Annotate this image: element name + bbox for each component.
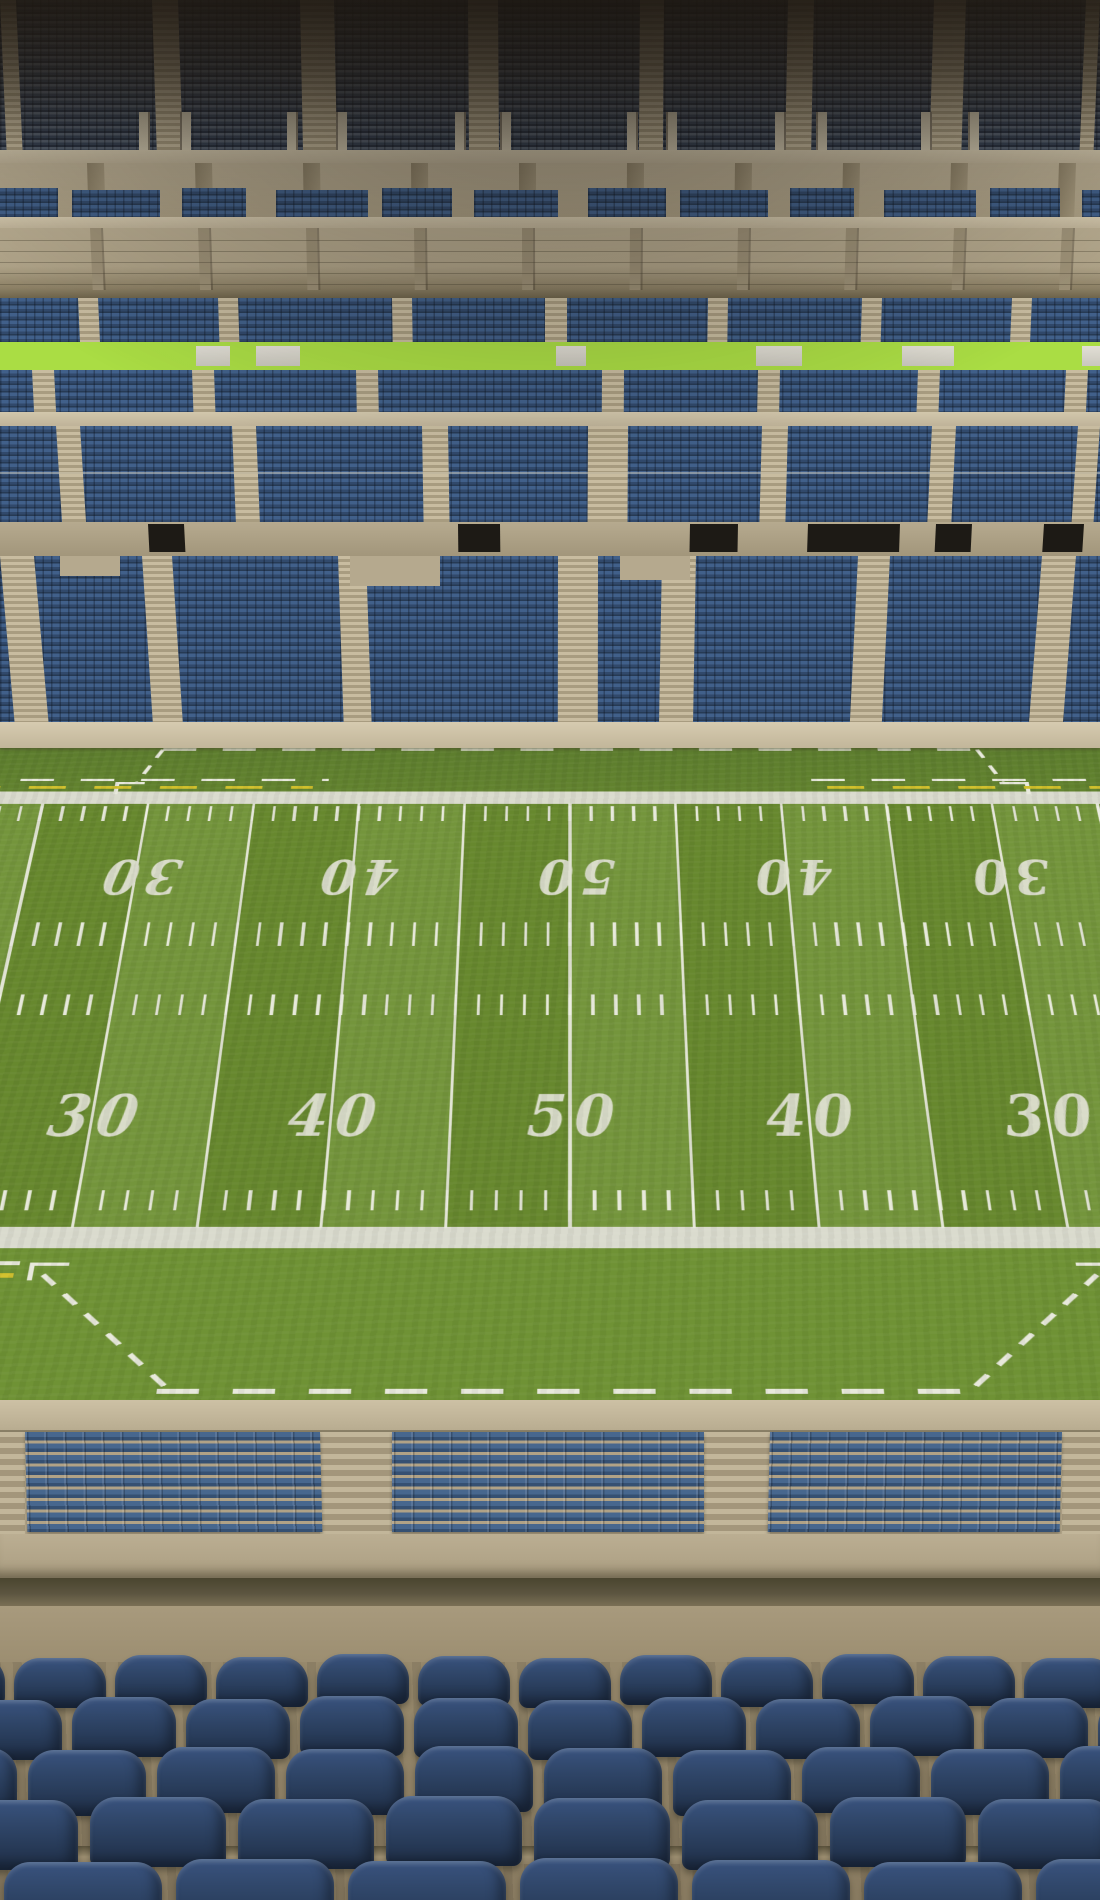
foreground-seat bbox=[0, 1656, 5, 1706]
foreground-seat bbox=[830, 1797, 966, 1867]
foreground-seat bbox=[72, 1697, 176, 1757]
foreground-seat-rows bbox=[0, 0, 1100, 1900]
foreground-seat bbox=[348, 1861, 506, 1900]
foreground-seat bbox=[642, 1697, 746, 1757]
foreground-seat bbox=[90, 1797, 226, 1867]
foreground-seat bbox=[386, 1796, 522, 1866]
foreground-seat bbox=[1036, 1859, 1100, 1900]
foreground-seat bbox=[520, 1858, 678, 1900]
foreground-seat bbox=[176, 1859, 334, 1900]
foreground-seat bbox=[0, 1800, 78, 1870]
stadium-seat-view: 203040504030203040504030 bbox=[0, 0, 1100, 1900]
foreground-seat bbox=[692, 1860, 850, 1900]
foreground-seat bbox=[4, 1862, 162, 1900]
foreground-seat bbox=[864, 1862, 1022, 1900]
foreground-seat bbox=[300, 1696, 404, 1756]
